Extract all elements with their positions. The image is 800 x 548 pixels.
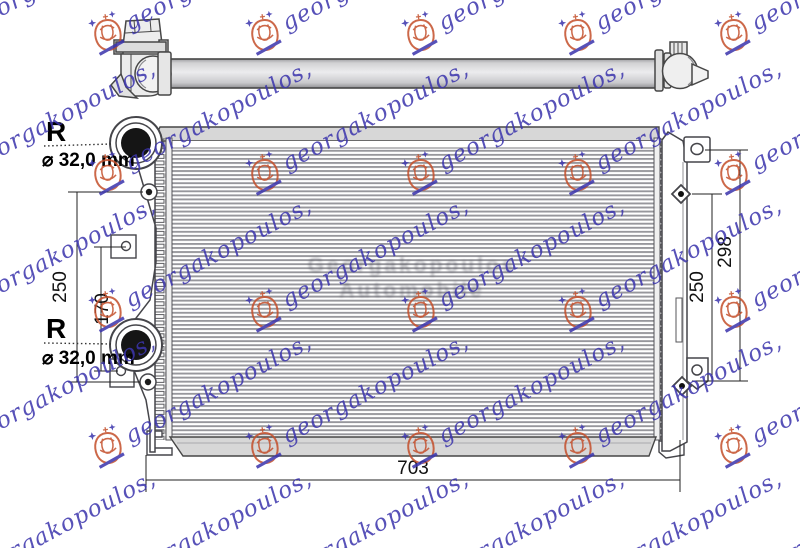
lower-inlet-r: R bbox=[46, 313, 66, 344]
upper-left-bolt bbox=[141, 184, 157, 200]
radiator-drawing-layer: Georgakopoulos Automobile bbox=[0, 0, 800, 548]
top-hose-pipe bbox=[111, 19, 708, 98]
dim-bottom: 703 bbox=[397, 458, 429, 479]
upper-inlet-diameter: ⌀ 32,0 mm bbox=[42, 150, 135, 171]
top-header-tank bbox=[153, 127, 659, 141]
upper-left-bracket-hole bbox=[122, 242, 131, 251]
dim-left-outer: 250 bbox=[50, 271, 71, 303]
lower-inlet-diameter: ⌀ 32,0 mm bbox=[42, 348, 135, 369]
lower-left-bolt bbox=[140, 374, 156, 390]
faint-core-watermark-line2: Automobile bbox=[339, 279, 485, 302]
pipe-right-end-connector bbox=[655, 42, 708, 91]
dim-right-outer: 298 bbox=[715, 236, 736, 268]
left-side-plate bbox=[155, 138, 172, 440]
faint-core-watermark-line1: Georgakopoulos bbox=[308, 254, 517, 277]
dim-right-inner: 250 bbox=[687, 271, 708, 303]
dim-left-inner: 170 bbox=[92, 293, 113, 325]
bottom-tank bbox=[170, 437, 656, 456]
radiator-technical-drawing: Georgakopoulos Automobile bbox=[0, 0, 800, 548]
pipe-body bbox=[170, 59, 658, 88]
header-gap bbox=[168, 141, 656, 148]
upper-inlet-r: R bbox=[46, 116, 66, 147]
radiator-body: Georgakopoulos Automobile bbox=[110, 117, 710, 458]
upper-right-bracket-hole bbox=[691, 144, 703, 155]
lower-right-bracket-hole bbox=[692, 365, 702, 375]
left-tank bbox=[133, 130, 156, 452]
right-tank bbox=[662, 132, 687, 451]
pipe-left-elbow-connector bbox=[111, 19, 171, 98]
